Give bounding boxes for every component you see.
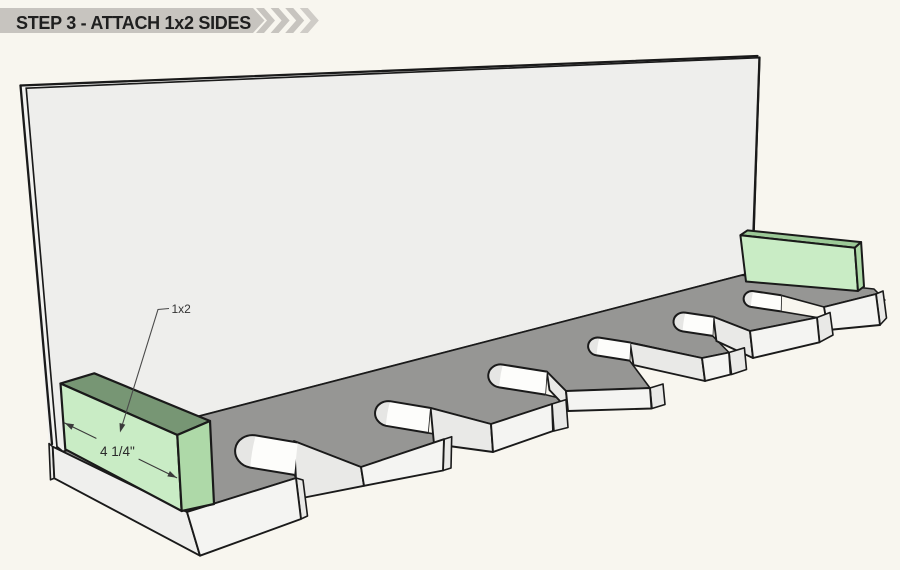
svg-text:1x2: 1x2 — [172, 302, 192, 316]
svg-text:4 1/4": 4 1/4" — [100, 444, 135, 459]
